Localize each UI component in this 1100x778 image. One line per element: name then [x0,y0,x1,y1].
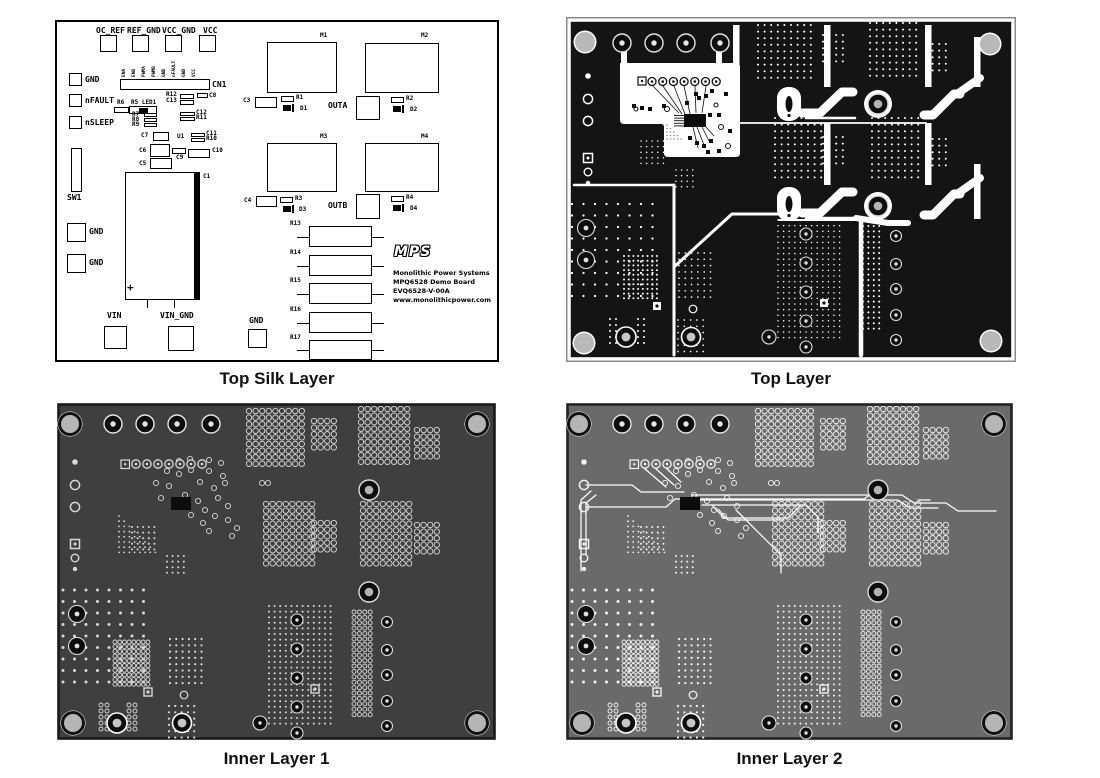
silk-label: R11 [196,115,207,121]
silk-info-line: www.monolithicpower.com [393,297,491,304]
silk-label: D1 [300,106,307,112]
silk-cn1-pin-label: nFAULT [173,61,178,77]
silk-outline [256,196,277,207]
silk-outline [69,116,82,129]
silk-label: CN1 [212,81,226,89]
pcb-layers-figure: OC_REFREF_GNDVCC_GNDVCCGNDnFAULTnSLEEPSW… [0,0,1100,778]
silk-label: nFAULT [85,97,114,105]
silk-outline [104,326,127,349]
silk-outline [191,138,205,142]
silk-lead [297,266,309,267]
silk-label: R6 [117,100,124,106]
silk-label: OC_REF [96,27,125,35]
silk-label: M1 [320,33,327,39]
silk-lead [174,300,175,308]
silk-label: R4 [406,195,413,201]
silk-outline [71,148,82,192]
silk-outline [280,197,293,203]
silk-label: R2 [406,96,413,102]
silk-outline [199,35,216,52]
silk-outline [281,96,294,102]
silk-info-line: MPQ6528 Demo Board [393,279,475,286]
silk-diode-symbol [393,204,406,212]
silk-outline [150,158,172,169]
silk-outline [144,123,157,127]
silk-label: VIN_GND [160,312,194,320]
silk-label: R14 [290,250,301,256]
silk-label: M2 [421,33,428,39]
silk-info-line: EVQ6528-V-00A [393,288,450,295]
silk-label: C10 [212,148,223,154]
silk-label: C8 [209,93,216,99]
mps-logo: MPS [394,244,431,260]
silk-resistor [309,312,372,333]
silk-outline [144,118,157,122]
silk-diode-symbol [393,105,406,113]
silk-outline [132,35,149,52]
silk-outline [356,194,380,219]
silk-diode-symbol [283,205,296,213]
silk-polarity-plus: + [127,282,134,293]
silk-outline [180,100,194,105]
silk-lead [297,294,309,295]
silk-outline [365,43,439,93]
silk-label: GND [89,259,103,267]
silk-outline [391,97,404,103]
silk-lead [372,237,384,238]
silk-outline [191,133,205,137]
silk-label: GND [249,317,263,325]
silk-label: OUTA [328,102,347,110]
silk-label: D2 [410,107,417,113]
silk-label: VCC_GND [162,27,196,35]
silk-resistor [309,283,372,304]
silk-outline [197,93,208,98]
silk-label: VCC [203,27,217,35]
silk-label: C9 [176,155,183,161]
silk-label: R13 [290,221,301,227]
silk-outline [168,326,194,351]
silk-outline [180,94,194,99]
silk-cn1-pin-label: GND [163,69,168,77]
silk-label: C4 [244,198,251,204]
silk-outline [69,73,82,86]
silk-outline [267,42,337,93]
silk-lead [372,350,384,351]
silk-label: R9 [132,122,139,128]
silk-cn1-pin-label: ENB [133,69,138,77]
silk-lead [297,323,309,324]
silk-label: C13 [166,98,177,104]
silk-label: C1 [203,174,210,180]
silk-label: OUTB [328,202,347,210]
silk-outline [125,172,200,300]
inner-layer-2-view [566,403,1013,740]
top-silk-layer-view: OC_REFREF_GNDVCC_GNDVCCGNDnFAULTnSLEEPSW… [55,20,499,362]
silk-outline [356,96,380,120]
silk-label: U1 [177,134,184,140]
caption-inner-layer-2: Inner Layer 2 [566,749,1013,769]
silk-outline [120,79,210,90]
silk-outline [165,35,182,52]
caption-inner-layer-1: Inner Layer 1 [57,749,496,769]
silk-label: R10 [206,136,217,142]
silk-label: D4 [410,206,417,212]
silk-diode-symbol [283,104,296,112]
silk-outline [100,35,117,52]
silk-label: R17 [290,335,301,341]
silk-lead [372,323,384,324]
silk-label: R15 [290,278,301,284]
silk-label: R3 [295,196,302,202]
silk-info-line: Monolithic Power Systems [393,270,490,277]
silk-label: M4 [421,134,428,140]
silk-outline [267,143,337,192]
silk-label: nSLEEP [85,119,114,127]
silk-label: C6 [139,148,146,154]
silk-outline [153,132,169,141]
inner-layer-1-view [57,403,496,740]
silk-outline [391,196,404,202]
silk-outline [188,149,210,158]
silk-label: C7 [141,133,148,139]
caption-top-layer: Top Layer [566,369,1016,389]
silk-outline [144,113,157,117]
silk-cn1-pin-label: ENA [123,69,128,77]
silk-fill [194,172,200,300]
silk-label: GND [85,76,99,84]
silk-lead [372,266,384,267]
silk-resistor [309,340,372,360]
top-layer-view [566,17,1016,362]
silk-label: C5 [139,161,146,167]
silk-resistor [309,226,372,247]
silk-cn1-pin-label: PWMB [153,66,158,77]
silk-outline [67,223,86,242]
silk-lead [372,294,384,295]
silk-cn1-pin-label: VCC [193,69,198,77]
silk-resistor [309,255,372,276]
silk-outline [69,94,82,107]
silk-outline [180,112,195,116]
silk-label: VIN [107,312,121,320]
silk-outline [180,117,195,121]
silk-lead [297,237,309,238]
silk-cn1-pin-label: PWMA [143,66,148,77]
silk-label: R16 [290,307,301,313]
silk-label: R1 [296,95,303,101]
silk-label: D3 [299,207,306,213]
silk-label: GND [89,228,103,236]
caption-top-silk-layer: Top Silk Layer [55,369,499,389]
silk-lead [297,350,309,351]
silk-label: C3 [243,98,250,104]
silk-outline [255,97,277,108]
silk-outline [67,254,86,273]
silk-cn1-pin-label: GND [183,69,188,77]
silk-label: M3 [320,134,327,140]
silk-outline [150,144,170,157]
silk-lead [147,300,148,308]
silk-outline [248,329,267,348]
silk-label: SW1 [67,194,81,202]
silk-outline [114,107,129,113]
silk-outline [365,143,439,192]
silk-label: REF_GND [127,27,161,35]
